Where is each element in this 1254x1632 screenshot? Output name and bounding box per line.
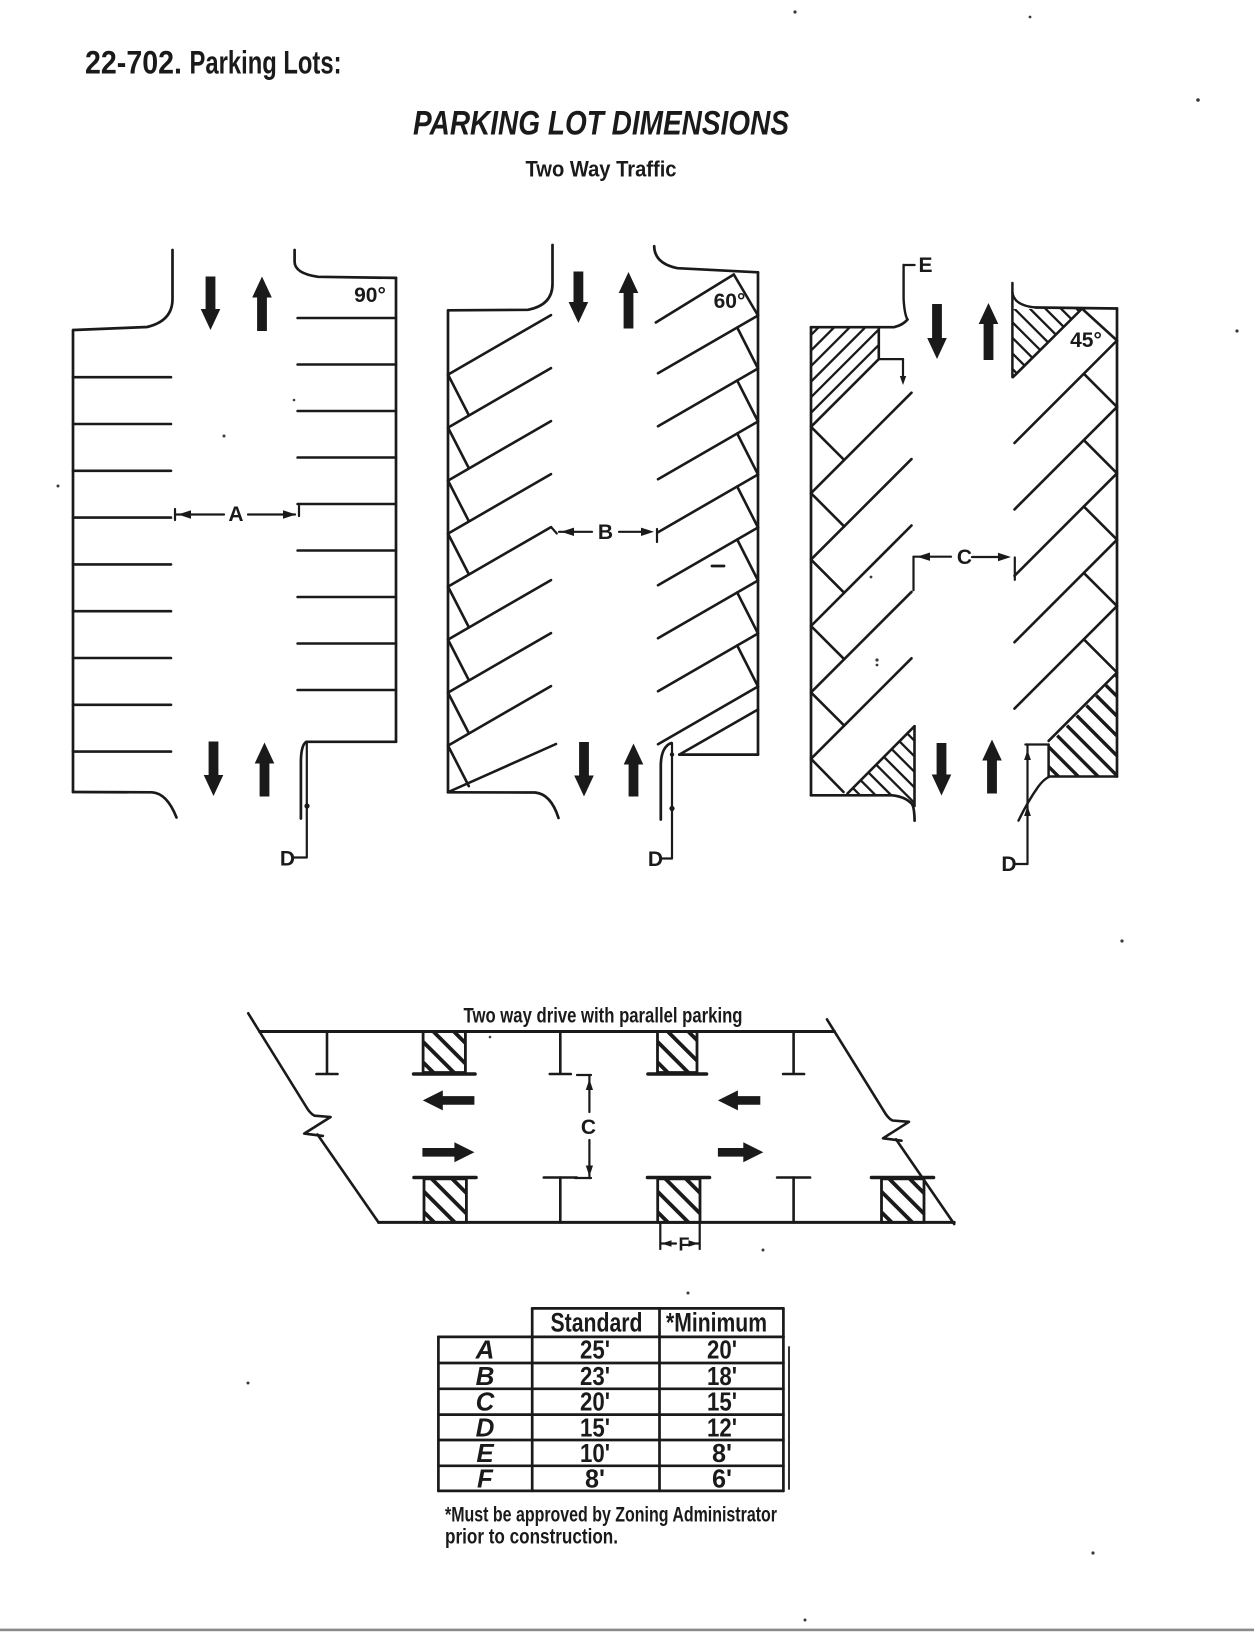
svg-text:F: F: [679, 1235, 690, 1255]
svg-text:8': 8': [585, 1464, 605, 1494]
svg-text:F: F: [477, 1464, 494, 1494]
svg-text:*Must be approved by Zoning Ad: *Must be approved by Zoning Administrato…: [445, 1504, 777, 1527]
svg-text:D: D: [280, 848, 295, 871]
svg-text:PARKING LOT DIMENSIONS: PARKING LOT DIMENSIONS: [413, 105, 789, 143]
svg-text:Parking Lots:: Parking Lots:: [190, 45, 342, 81]
svg-text:A: A: [228, 503, 243, 526]
svg-text:6': 6': [712, 1464, 732, 1494]
svg-text:*Minimum: *Minimum: [666, 1308, 767, 1338]
svg-text:D: D: [648, 848, 663, 871]
svg-text:D: D: [1001, 853, 1016, 876]
svg-text:prior to construction.: prior to construction.: [445, 1526, 618, 1549]
svg-text:C: C: [581, 1116, 596, 1139]
svg-text:B: B: [598, 521, 613, 544]
svg-text:60°: 60°: [714, 290, 746, 313]
svg-text:90°: 90°: [354, 284, 386, 307]
svg-text:45°: 45°: [1070, 329, 1102, 352]
svg-text:C: C: [957, 546, 972, 569]
svg-text:E: E: [918, 254, 932, 277]
svg-text:22-702.: 22-702.: [85, 45, 182, 81]
svg-text:Two way drive with parallel pa: Two way drive with parallel parking: [464, 1005, 743, 1028]
svg-text:Standard: Standard: [551, 1308, 643, 1338]
svg-text:Two Way Traffic: Two Way Traffic: [526, 157, 677, 182]
